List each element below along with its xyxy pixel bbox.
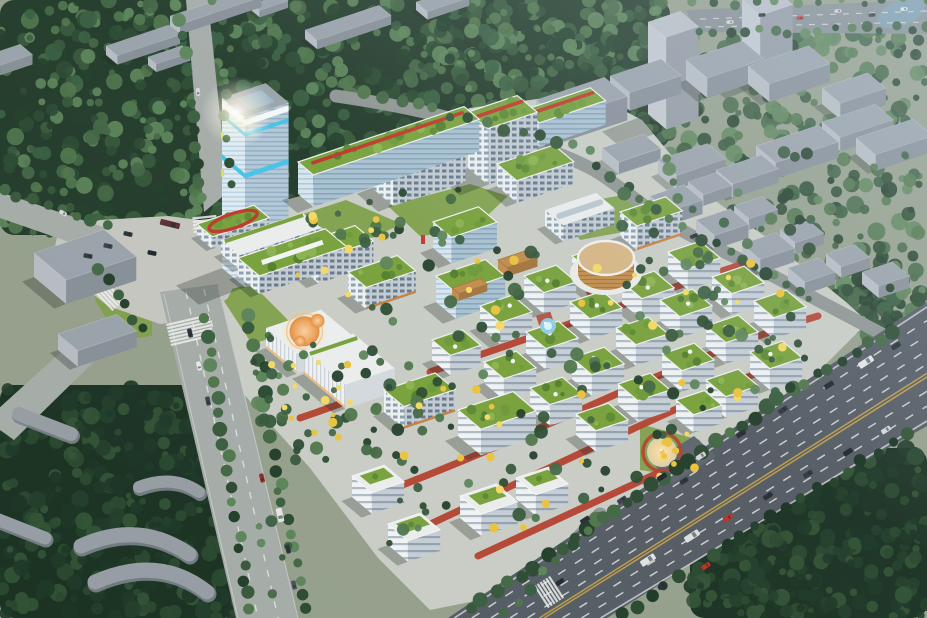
aerial-rendering [0, 0, 927, 618]
aerial-rendering-viewport [0, 0, 927, 618]
atmospheric-haze [0, 0, 927, 618]
